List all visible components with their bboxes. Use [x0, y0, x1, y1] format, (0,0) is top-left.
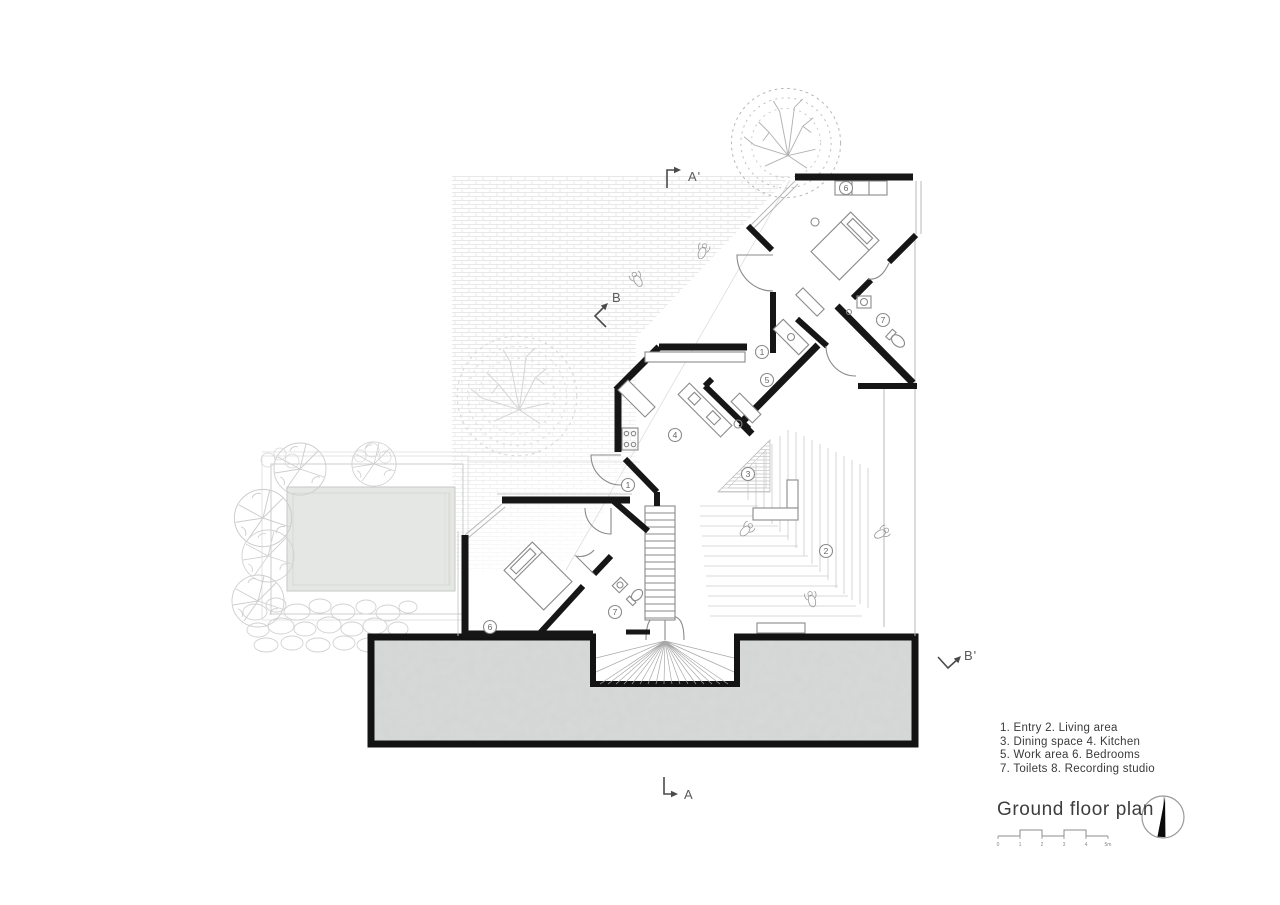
- svg-text:5m: 5m: [1105, 842, 1112, 848]
- page-title: Ground floor plan: [997, 799, 1154, 821]
- legend-line: 7. Toilets 8. Recording studio: [1000, 763, 1155, 777]
- legend-line: 5. Work area 6. Bedrooms: [1000, 749, 1155, 763]
- room-marker: 7: [609, 606, 622, 619]
- sink-icon: [857, 296, 871, 308]
- person-icon: [737, 520, 756, 539]
- svg-text:6: 6: [488, 622, 493, 632]
- room-legend: 1. Entry 2. Living area 3. Dining space …: [1000, 722, 1155, 776]
- svg-text:7: 7: [613, 607, 618, 617]
- section-marker-a-bottom: A: [664, 777, 694, 802]
- svg-text:2: 2: [824, 546, 829, 556]
- side-table-icon: [811, 218, 819, 226]
- staircase: [645, 506, 675, 620]
- svg-text:1: 1: [626, 480, 631, 490]
- room-marker: 6: [484, 621, 497, 634]
- svg-text:1: 1: [1019, 842, 1022, 848]
- svg-text:5: 5: [765, 375, 770, 385]
- pool: [287, 487, 455, 591]
- person-icon: [804, 590, 819, 608]
- sink-icon: [612, 577, 628, 593]
- svg-text:2: 2: [1041, 842, 1044, 848]
- svg-text:3: 3: [1063, 842, 1066, 848]
- room-marker: 5: [761, 374, 774, 387]
- brick-paving: [452, 176, 790, 572]
- tree-icon: [234, 489, 291, 546]
- svg-text:4: 4: [1085, 842, 1088, 848]
- section-label: A': [688, 169, 701, 184]
- doormat: [757, 623, 805, 633]
- dining-deck: [718, 440, 770, 492]
- svg-text:7: 7: [881, 315, 886, 325]
- svg-text:1: 1: [760, 347, 765, 357]
- room-marker: 1: [756, 346, 769, 359]
- svg-text:6: 6: [844, 183, 849, 193]
- kitchen-counter: [645, 352, 745, 362]
- section-label: B': [964, 648, 977, 663]
- wc-icon: [886, 329, 907, 349]
- svg-text:0: 0: [997, 842, 1000, 848]
- tree-icon: [232, 575, 284, 627]
- room-marker: 1: [622, 479, 635, 492]
- floor-plan-sheet: A' B B' A 6 7 1 5 4 3 2 1 6 7 0 1 2 3 4 …: [0, 0, 1280, 905]
- room-marker: 2: [820, 545, 833, 558]
- cabinet-icon: [796, 288, 824, 316]
- legend-line: 3. Dining space 4. Kitchen: [1000, 736, 1155, 750]
- svg-text:3: 3: [746, 469, 751, 479]
- section-marker-b-lower: B': [938, 648, 977, 668]
- person-icon: [872, 524, 891, 542]
- legend-line: 1. Entry 2. Living area: [1000, 722, 1155, 736]
- tree-icon: [242, 530, 294, 582]
- room-marker: 6: [840, 182, 853, 195]
- svg-text:4: 4: [673, 430, 678, 440]
- bed-icon: [811, 212, 879, 280]
- scale-bar: 0 1 2 3 4 5m: [997, 830, 1112, 848]
- room-marker: 4: [669, 429, 682, 442]
- room-marker: 7: [877, 314, 890, 327]
- kitchen-island: [678, 383, 732, 437]
- wc-icon: [626, 587, 644, 605]
- section-label: A: [684, 787, 694, 802]
- living-steps: [700, 430, 868, 616]
- section-label: B: [612, 290, 622, 305]
- room-marker: 3: [742, 468, 755, 481]
